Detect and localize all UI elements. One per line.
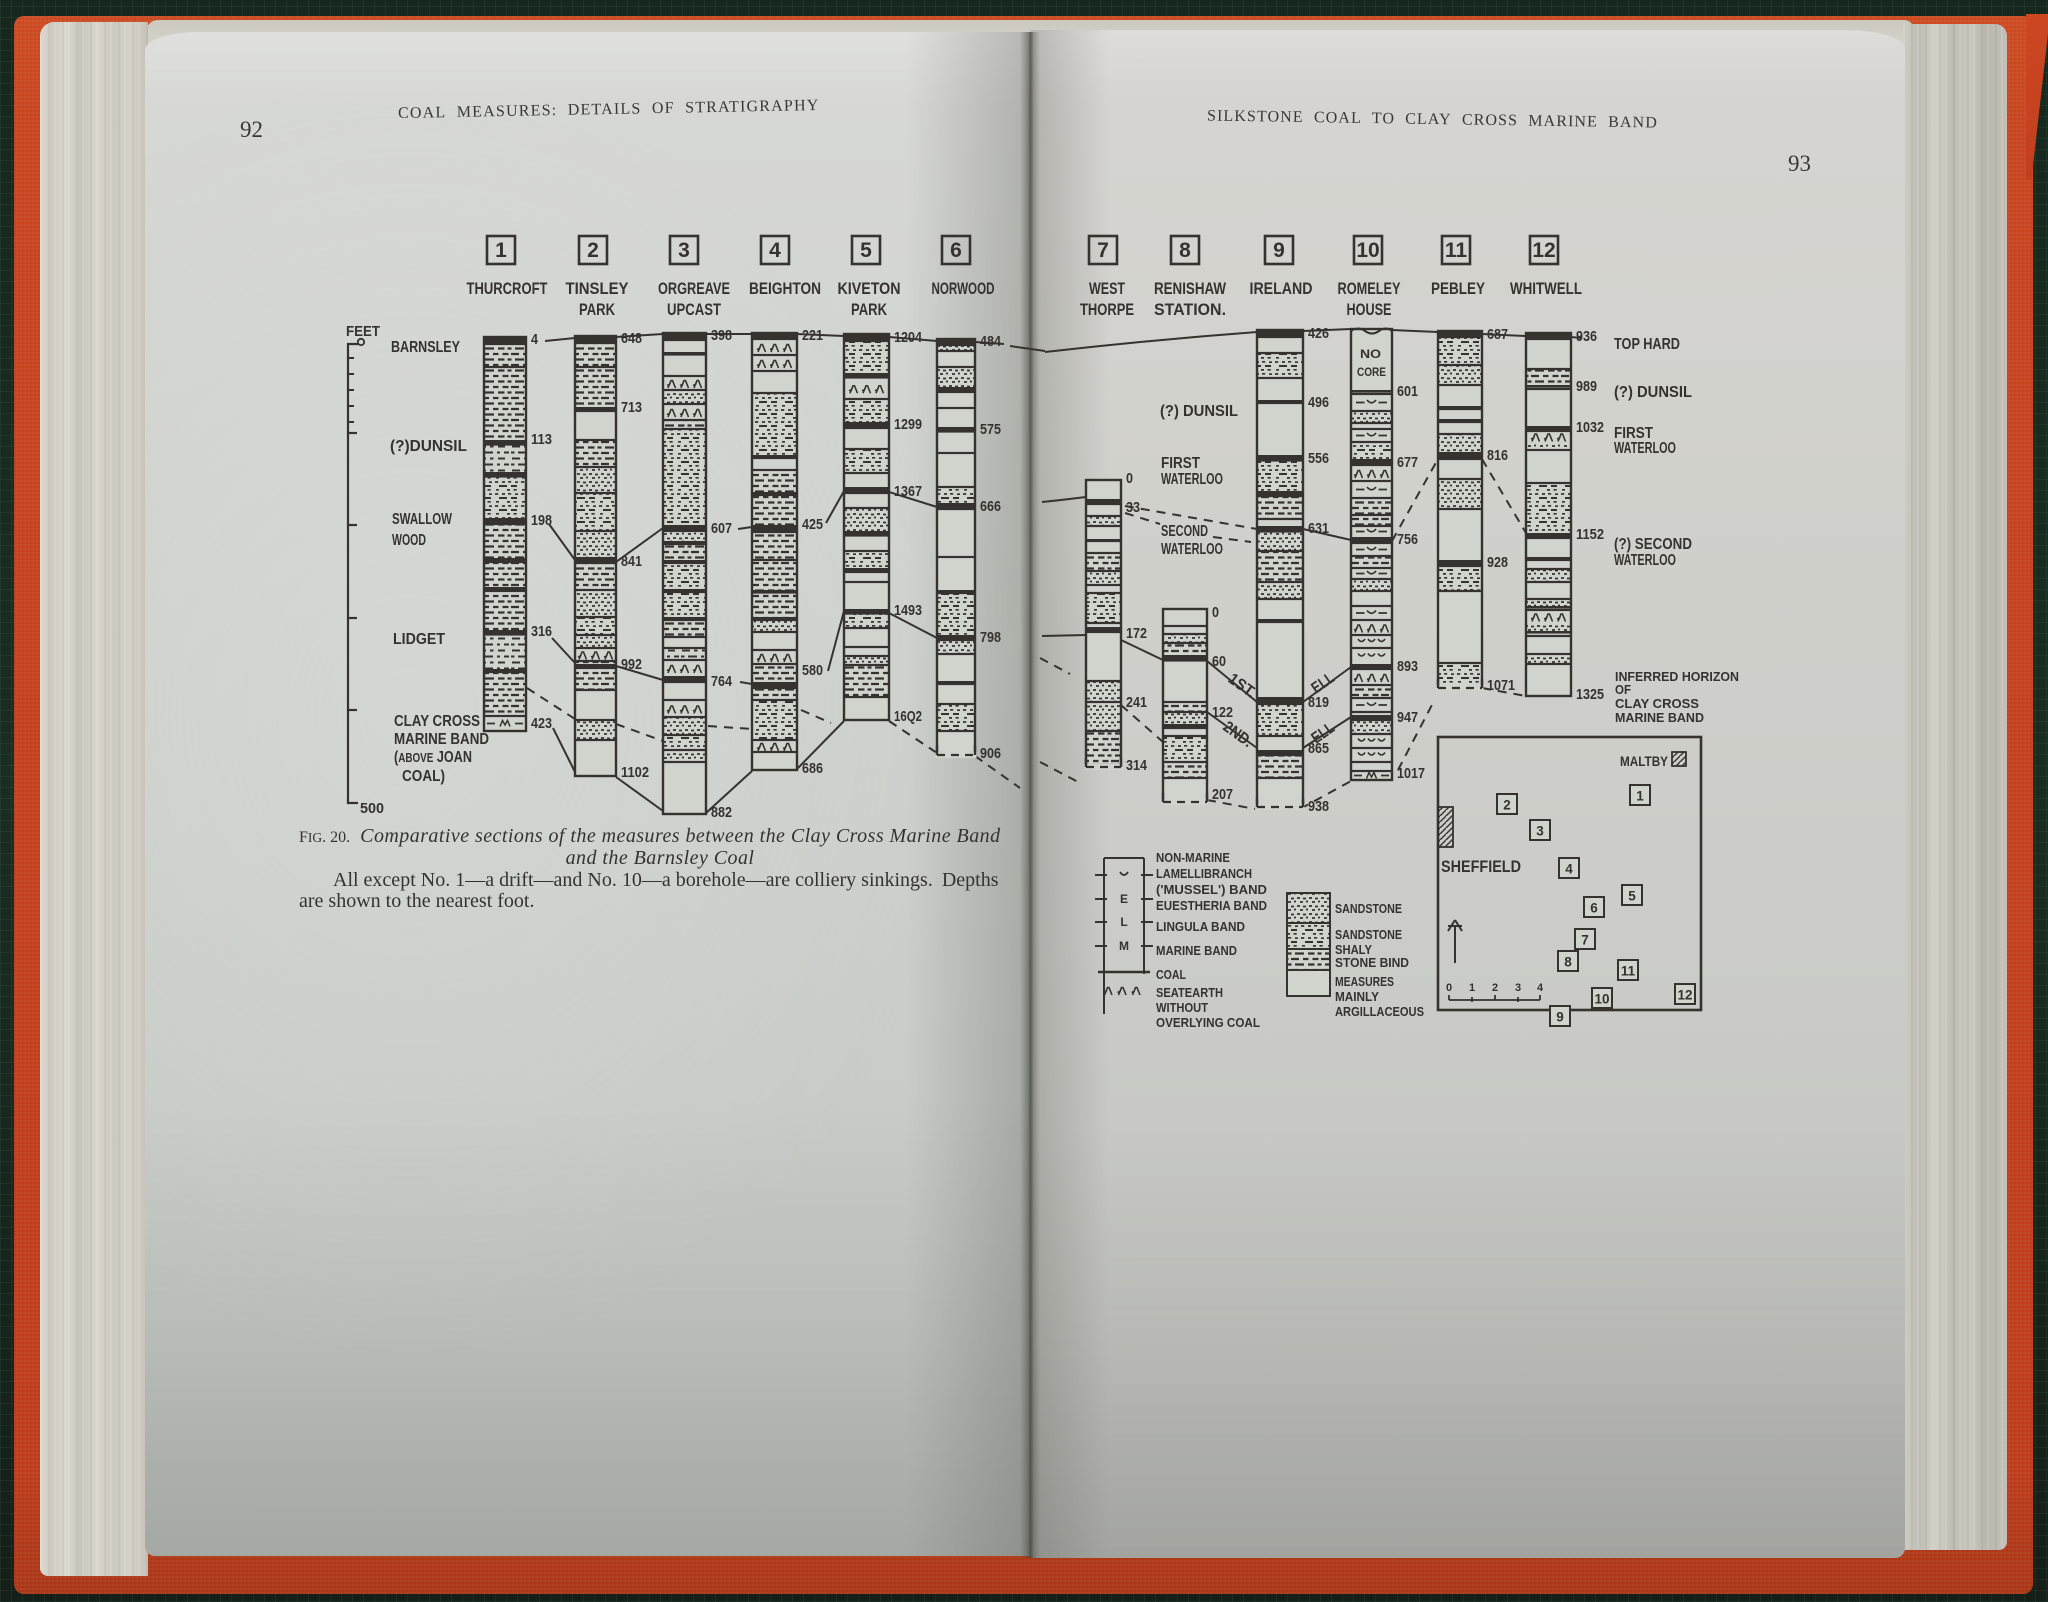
- svg-text:3: 3: [1515, 982, 1521, 994]
- svg-text:207: 207: [1212, 786, 1233, 803]
- svg-text:426: 426: [1308, 325, 1329, 342]
- svg-text:LAMELLIBRANCH: LAMELLIBRANCH: [1156, 866, 1252, 881]
- svg-text:2: 2: [587, 239, 599, 262]
- svg-text:WOOD: WOOD: [392, 532, 426, 549]
- svg-text:ORGREAVE: ORGREAVE: [658, 279, 730, 298]
- svg-text:677: 677: [1397, 454, 1418, 471]
- svg-text:1152: 1152: [1576, 526, 1604, 543]
- svg-text:MALTBY: MALTBY: [1620, 754, 1668, 769]
- svg-text:631: 631: [1308, 520, 1329, 537]
- svg-text:ROMELEY: ROMELEY: [1338, 279, 1401, 298]
- svg-text:4: 4: [769, 239, 781, 262]
- svg-text:BEIGHTON: BEIGHTON: [749, 279, 821, 298]
- svg-text:1367: 1367: [894, 483, 922, 500]
- svg-text:11: 11: [1445, 239, 1468, 262]
- svg-text:1071: 1071: [1487, 677, 1515, 694]
- svg-text:WITHOUT: WITHOUT: [1156, 1000, 1208, 1015]
- svg-text:0: 0: [1126, 470, 1133, 487]
- svg-text:MAINLY: MAINLY: [1335, 989, 1379, 1004]
- svg-text:UPCAST: UPCAST: [667, 300, 721, 319]
- svg-text:1: 1: [1469, 982, 1475, 994]
- svg-text:EUESTHERIA BAND: EUESTHERIA BAND: [1156, 898, 1267, 913]
- svg-text:TINSLEY: TINSLEY: [566, 279, 630, 298]
- svg-text:MARINE BAND: MARINE BAND: [1156, 943, 1237, 958]
- svg-text:2: 2: [1492, 982, 1498, 994]
- svg-text:(?) DUNSIL: (?) DUNSIL: [1614, 384, 1692, 401]
- svg-text:SEATEARTH: SEATEARTH: [1156, 985, 1223, 1000]
- svg-text:6: 6: [950, 239, 962, 262]
- svg-text:4: 4: [1565, 862, 1573, 877]
- svg-text:1ST.: 1ST.: [1225, 670, 1259, 701]
- svg-text:1299: 1299: [894, 416, 922, 433]
- svg-text:496: 496: [1308, 394, 1329, 411]
- svg-text:484: 484: [980, 333, 1002, 350]
- svg-text:(?)DUNSIL: (?)DUNSIL: [390, 438, 467, 455]
- svg-text:113: 113: [531, 431, 552, 448]
- svg-text:1493: 1493: [894, 602, 922, 619]
- svg-text:LINGULA BAND: LINGULA BAND: [1156, 919, 1245, 934]
- svg-text:1102: 1102: [621, 764, 649, 781]
- svg-text:0: 0: [1212, 604, 1219, 621]
- svg-text:575: 575: [980, 421, 1001, 438]
- svg-text:4: 4: [531, 331, 539, 348]
- svg-text:1032: 1032: [1576, 419, 1604, 436]
- svg-text:2ND.: 2ND.: [1220, 718, 1256, 751]
- svg-text:11: 11: [1621, 964, 1636, 979]
- svg-text:WHITWELL: WHITWELL: [1510, 279, 1582, 298]
- svg-text:ARGILLACEOUS: ARGILLACEOUS: [1335, 1004, 1424, 1019]
- svg-text:12: 12: [1677, 988, 1692, 1003]
- svg-text:241: 241: [1126, 694, 1147, 711]
- svg-text:687: 687: [1487, 326, 1508, 343]
- svg-text:RENISHAW: RENISHAW: [1154, 279, 1227, 298]
- svg-text:172: 172: [1126, 625, 1147, 642]
- svg-text:LIDGET: LIDGET: [393, 631, 445, 648]
- svg-text:198: 198: [531, 512, 552, 529]
- svg-text:PARK: PARK: [851, 300, 888, 319]
- svg-text:MEASURES: MEASURES: [1335, 974, 1394, 989]
- svg-text:1: 1: [1636, 789, 1644, 804]
- svg-text:SHEFFIELD: SHEFFIELD: [1441, 857, 1521, 876]
- svg-text:6: 6: [1590, 901, 1598, 916]
- svg-text:STATION.: STATION.: [1154, 300, 1226, 319]
- svg-text:314: 314: [1126, 757, 1148, 774]
- svg-text:1325: 1325: [1576, 686, 1604, 703]
- svg-text:556: 556: [1308, 450, 1329, 467]
- svg-text:648: 648: [621, 330, 642, 347]
- svg-text:('MUSSEL') BAND: ('MUSSEL') BAND: [1156, 882, 1267, 897]
- svg-text:CLAY CROSS: CLAY CROSS: [394, 713, 480, 730]
- svg-text:841: 841: [621, 553, 642, 570]
- svg-text:1: 1: [495, 239, 507, 262]
- svg-text:KIVETON: KIVETON: [838, 279, 901, 298]
- svg-text:60: 60: [1212, 653, 1226, 670]
- svg-text:E: E: [1120, 892, 1128, 906]
- svg-text:SWALLOW: SWALLOW: [392, 511, 453, 528]
- svg-text:607: 607: [711, 520, 732, 537]
- svg-text:10: 10: [1356, 239, 1379, 262]
- svg-text:221: 221: [802, 327, 823, 344]
- svg-text:686: 686: [802, 760, 823, 777]
- svg-text:816: 816: [1487, 447, 1508, 464]
- svg-text:PARK: PARK: [579, 300, 616, 319]
- svg-text:WATERLOO: WATERLOO: [1614, 440, 1676, 457]
- svg-text:SANDSTONE: SANDSTONE: [1335, 927, 1402, 942]
- svg-text:SECOND: SECOND: [1161, 523, 1208, 540]
- svg-text:798: 798: [980, 629, 1001, 646]
- svg-text:CLAY CROSS: CLAY CROSS: [1615, 696, 1699, 711]
- svg-text:989: 989: [1576, 378, 1597, 395]
- svg-text:0: 0: [1446, 982, 1452, 994]
- svg-text:756: 756: [1397, 531, 1418, 548]
- svg-text:12: 12: [1532, 239, 1555, 262]
- svg-text:398: 398: [711, 327, 732, 344]
- svg-text:FEET: FEET: [346, 323, 380, 340]
- svg-text:9: 9: [1556, 1010, 1564, 1025]
- svg-text:SANDSTONE: SANDSTONE: [1335, 901, 1402, 916]
- svg-text:947: 947: [1397, 709, 1418, 726]
- svg-text:764: 764: [711, 673, 733, 690]
- svg-text:9: 9: [1273, 239, 1285, 262]
- svg-text:713: 713: [621, 399, 642, 416]
- svg-text:7: 7: [1581, 933, 1589, 948]
- svg-text:928: 928: [1487, 554, 1508, 571]
- svg-text:316: 316: [531, 623, 552, 640]
- svg-text:5: 5: [1628, 889, 1636, 904]
- svg-text:BARNSLEY: BARNSLEY: [391, 339, 460, 356]
- svg-text:OF: OF: [1615, 682, 1631, 697]
- svg-text:WATERLOO: WATERLOO: [1161, 541, 1223, 558]
- svg-text:PEBLEY: PEBLEY: [1431, 279, 1486, 298]
- svg-text:938: 938: [1308, 798, 1329, 815]
- svg-text:NO: NO: [1360, 347, 1381, 361]
- svg-text:8: 8: [1564, 955, 1572, 970]
- svg-text:10: 10: [1594, 992, 1609, 1007]
- svg-text:M: M: [1119, 939, 1129, 953]
- svg-text:COAL): COAL): [402, 768, 445, 785]
- svg-text:TOP HARD: TOP HARD: [1614, 336, 1680, 353]
- svg-text:(?) DUNSIL: (?) DUNSIL: [1160, 403, 1238, 420]
- svg-text:L: L: [1120, 915, 1127, 929]
- svg-text:WEST: WEST: [1089, 279, 1125, 298]
- svg-text:COAL: COAL: [1156, 967, 1186, 982]
- svg-text:FIRST: FIRST: [1161, 455, 1200, 472]
- svg-text:WATERLOO: WATERLOO: [1614, 552, 1676, 569]
- svg-text:500: 500: [360, 800, 384, 817]
- svg-text:OVERLYING COAL: OVERLYING COAL: [1156, 1015, 1260, 1030]
- svg-text:STONE BIND: STONE BIND: [1335, 955, 1409, 970]
- svg-text:IRELAND: IRELAND: [1250, 279, 1313, 298]
- svg-text:992: 992: [621, 656, 642, 673]
- svg-text:INFERRED HORIZON: INFERRED HORIZON: [1615, 669, 1739, 684]
- svg-text:882: 882: [711, 804, 732, 821]
- svg-text:THORPE: THORPE: [1080, 300, 1134, 319]
- svg-text:MARINE BAND: MARINE BAND: [394, 731, 489, 748]
- svg-text:1204: 1204: [894, 329, 923, 346]
- svg-text:5: 5: [860, 239, 872, 262]
- svg-text:33: 33: [1126, 499, 1140, 516]
- svg-text:601: 601: [1397, 383, 1418, 400]
- svg-text:WATERLOO: WATERLOO: [1161, 471, 1223, 488]
- svg-text:906: 906: [980, 745, 1001, 762]
- svg-text:3: 3: [1536, 824, 1544, 839]
- svg-text:893: 893: [1397, 658, 1418, 675]
- svg-text:4: 4: [1537, 982, 1544, 994]
- svg-text:936: 936: [1576, 328, 1597, 345]
- svg-text:NORWOOD: NORWOOD: [932, 279, 995, 298]
- svg-text:NON-MARINE: NON-MARINE: [1156, 850, 1230, 865]
- svg-text:MARINE BAND: MARINE BAND: [1615, 710, 1704, 725]
- svg-text:(?) SECOND: (?) SECOND: [1614, 536, 1692, 553]
- svg-text:(ABOVE JOAN: (ABOVE JOAN: [394, 749, 472, 766]
- svg-text:1017: 1017: [1397, 765, 1425, 782]
- svg-text:666: 666: [980, 498, 1001, 515]
- svg-text:580: 580: [802, 662, 823, 679]
- svg-text:7: 7: [1097, 239, 1109, 262]
- svg-text:423: 423: [531, 715, 552, 732]
- svg-text:3: 3: [678, 239, 690, 262]
- svg-text:425: 425: [802, 516, 823, 533]
- svg-text:16Q2: 16Q2: [894, 708, 922, 725]
- svg-text:HOUSE: HOUSE: [1347, 300, 1392, 319]
- svg-text:8: 8: [1179, 239, 1191, 262]
- svg-text:2: 2: [1503, 798, 1511, 813]
- svg-text:THURCROFT: THURCROFT: [467, 279, 548, 298]
- svg-text:CORE: CORE: [1357, 365, 1386, 379]
